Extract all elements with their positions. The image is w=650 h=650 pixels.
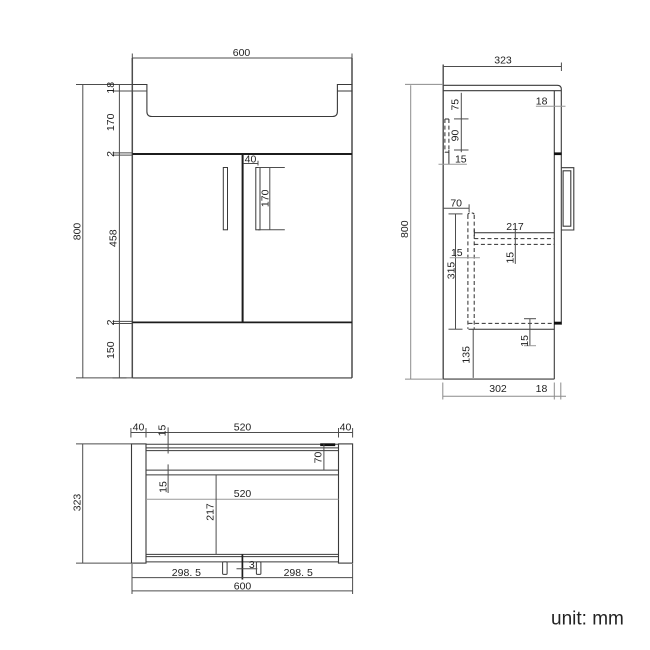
- svg-text:70: 70: [313, 452, 325, 464]
- svg-text:15: 15: [156, 425, 168, 437]
- svg-text:40: 40: [340, 422, 352, 434]
- svg-text:40: 40: [133, 422, 145, 434]
- svg-text:170: 170: [259, 189, 271, 207]
- svg-text:15: 15: [158, 481, 170, 493]
- svg-text:298. 5: 298. 5: [172, 567, 201, 579]
- svg-text:302: 302: [489, 383, 507, 395]
- svg-text:217: 217: [204, 503, 216, 521]
- svg-text:40: 40: [245, 154, 257, 166]
- svg-text:2: 2: [105, 319, 117, 325]
- svg-text:75: 75: [449, 99, 461, 111]
- svg-text:600: 600: [234, 580, 252, 592]
- svg-text:800: 800: [399, 220, 411, 238]
- svg-text:2: 2: [105, 151, 117, 157]
- svg-text:18: 18: [536, 95, 548, 107]
- svg-text:315: 315: [445, 262, 457, 280]
- svg-text:unit: mm: unit: mm: [551, 609, 624, 630]
- svg-text:800: 800: [71, 223, 83, 241]
- svg-text:70: 70: [450, 197, 462, 209]
- svg-text:600: 600: [233, 47, 251, 59]
- svg-text:15: 15: [519, 335, 531, 347]
- svg-text:323: 323: [494, 55, 512, 67]
- svg-text:135: 135: [461, 346, 473, 364]
- svg-text:520: 520: [234, 422, 252, 434]
- svg-text:150: 150: [105, 341, 117, 359]
- svg-text:18: 18: [105, 82, 117, 94]
- svg-text:15: 15: [504, 252, 516, 264]
- svg-text:458: 458: [108, 229, 120, 247]
- svg-text:90: 90: [450, 130, 462, 142]
- svg-text:170: 170: [105, 113, 117, 131]
- svg-text:298. 5: 298. 5: [284, 567, 313, 579]
- svg-text:18: 18: [536, 383, 548, 395]
- svg-text:3: 3: [249, 559, 255, 571]
- svg-text:15: 15: [455, 153, 467, 165]
- svg-text:323: 323: [72, 494, 84, 512]
- svg-text:520: 520: [234, 488, 252, 500]
- svg-text:15: 15: [451, 247, 463, 259]
